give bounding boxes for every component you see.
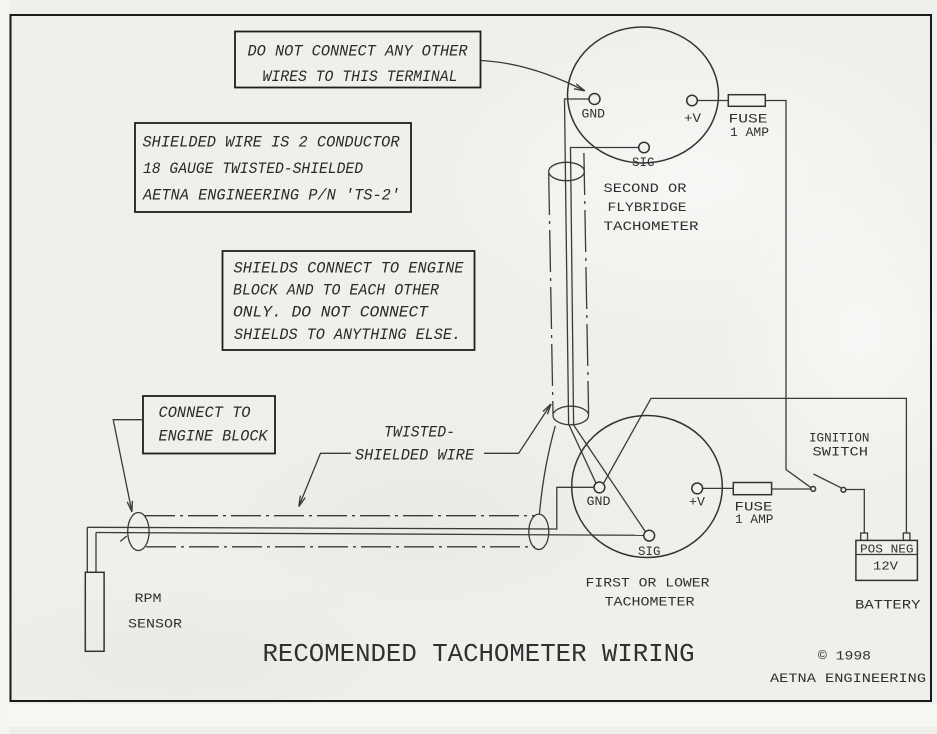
svg-text:ONLY. DO NOT CONNECT: ONLY. DO NOT CONNECT (233, 304, 429, 322)
svg-text:CONNECT TO: CONNECT TO (159, 404, 251, 422)
svg-text:SIG: SIG (632, 155, 655, 170)
svg-text:SHIELDS TO ANYTHING ELSE.: SHIELDS TO ANYTHING ELSE. (234, 326, 461, 344)
svg-text:GND: GND (587, 494, 611, 509)
svg-text:© 1998: © 1998 (818, 649, 871, 664)
svg-text:BLOCK AND TO EACH OTHER: BLOCK AND TO EACH OTHER (233, 282, 439, 300)
svg-text:DO NOT CONNECT ANY OTHER: DO NOT CONNECT ANY OTHER (248, 43, 468, 61)
svg-text:SHIELDED WIRE IS 2 CONDUCTOR: SHIELDED WIRE IS 2 CONDUCTOR (143, 134, 400, 152)
svg-text:1 AMP: 1 AMP (735, 512, 774, 527)
svg-text:+V: +V (684, 111, 701, 126)
svg-text:12V: 12V (873, 561, 898, 574)
svg-text:AETNA ENGINEERING P/N 'TS-2': AETNA ENGINEERING P/N 'TS-2' (142, 187, 400, 205)
svg-text:RECOMENDED TACHOMETER WIRING: RECOMENDED TACHOMETER WIRING (263, 639, 695, 669)
svg-text:FLYBRIDGE: FLYBRIDGE (608, 200, 687, 215)
svg-text:ENGINE BLOCK: ENGINE BLOCK (159, 428, 269, 446)
svg-text:TWISTED-: TWISTED- (384, 424, 455, 442)
svg-text:GND: GND (582, 107, 606, 122)
svg-text:WIRES TO THIS TERMINAL: WIRES TO THIS TERMINAL (263, 68, 458, 86)
svg-text:1 AMP: 1 AMP (730, 125, 769, 140)
svg-text:SENSOR: SENSOR (128, 617, 182, 632)
svg-text:POS NEG: POS NEG (860, 544, 914, 557)
svg-text:AETNA ENGINEERING: AETNA ENGINEERING (770, 671, 926, 686)
svg-text:SHIELDED WIRE: SHIELDED WIRE (355, 447, 474, 465)
svg-text:SHIELDS CONNECT TO ENGINE: SHIELDS CONNECT TO ENGINE (234, 260, 464, 278)
svg-text:+V: +V (689, 495, 705, 510)
svg-text:18 GAUGE TWISTED-SHIELDED: 18 GAUGE TWISTED-SHIELDED (143, 160, 363, 178)
svg-text:SECOND OR: SECOND OR (604, 181, 687, 196)
svg-text:RPM: RPM (135, 591, 162, 606)
svg-text:FIRST OR LOWER: FIRST OR LOWER (586, 576, 710, 591)
svg-text:SIG: SIG (638, 544, 661, 559)
svg-text:TACHOMETER: TACHOMETER (604, 219, 699, 234)
svg-text:BATTERY: BATTERY (855, 598, 921, 613)
svg-text:TACHOMETER: TACHOMETER (605, 595, 695, 610)
svg-text:IGNITION: IGNITION (809, 431, 870, 446)
svg-text:SWITCH: SWITCH (813, 445, 869, 460)
